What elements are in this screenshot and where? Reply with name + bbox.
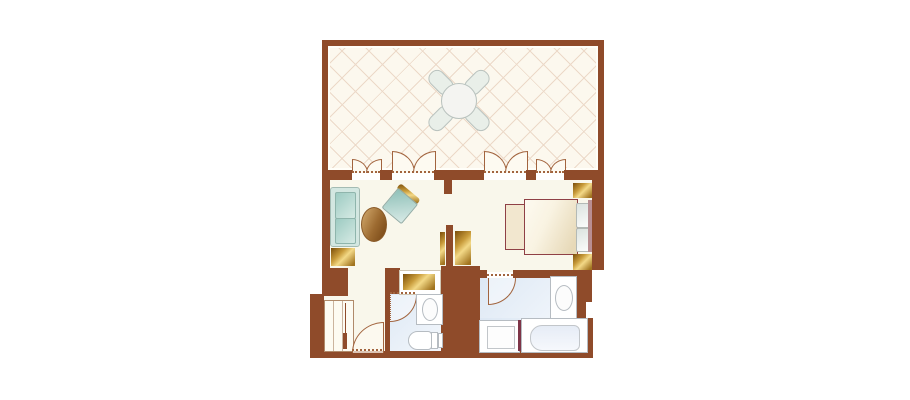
vanity-counter	[403, 274, 435, 290]
sofa-cushion	[335, 192, 356, 219]
sofa	[330, 187, 360, 247]
media-cabinet	[455, 231, 471, 265]
door-threshold	[484, 171, 526, 173]
balcony-wall	[322, 40, 328, 174]
door-threshold	[392, 171, 434, 173]
wall	[441, 266, 480, 358]
bed	[524, 199, 578, 255]
closet-panel-line	[333, 301, 334, 351]
wall-stub	[444, 180, 452, 194]
wall	[564, 170, 604, 180]
closet	[324, 300, 354, 352]
tub-basin	[530, 325, 580, 351]
sofa-cushion	[335, 218, 356, 244]
wall	[390, 351, 441, 358]
wall	[380, 170, 392, 180]
wall	[592, 180, 604, 270]
entry-threshold	[352, 349, 382, 351]
wall	[385, 268, 400, 294]
shower	[479, 320, 520, 353]
wall	[322, 268, 348, 296]
wall	[322, 180, 330, 268]
wall	[434, 170, 484, 180]
patio-table	[441, 83, 477, 119]
corridor-floor	[348, 268, 385, 296]
sink-basin	[555, 285, 573, 311]
door-threshold	[390, 292, 415, 294]
toilet-tank	[431, 332, 438, 349]
side-cabinet	[331, 248, 355, 266]
partition-wall	[446, 225, 453, 268]
door-threshold	[536, 171, 564, 173]
wall	[575, 270, 592, 302]
headboard	[588, 200, 592, 252]
coffee-table	[361, 207, 387, 242]
bed-bench	[505, 204, 526, 250]
nightstand	[573, 183, 592, 198]
sink-counter	[416, 294, 443, 325]
nightstand	[573, 254, 592, 270]
closet-handle	[343, 333, 347, 349]
wall	[526, 170, 536, 180]
floor-plan-canvas	[0, 0, 910, 400]
wall	[322, 170, 352, 180]
closet-rod	[345, 303, 346, 335]
balcony-wall	[322, 40, 604, 46]
balcony-wall	[598, 40, 604, 174]
wall	[310, 294, 324, 351]
sink-counter	[550, 276, 577, 319]
sink-basin	[422, 298, 438, 321]
toilet-tank	[438, 333, 443, 348]
door-threshold	[487, 274, 513, 276]
toilet-bowl	[408, 331, 432, 350]
door-threshold	[352, 171, 380, 173]
bathtub	[521, 318, 588, 353]
shower-tray	[487, 326, 515, 349]
wall	[452, 270, 487, 278]
toilet	[408, 330, 441, 349]
tv-stand	[440, 232, 445, 265]
